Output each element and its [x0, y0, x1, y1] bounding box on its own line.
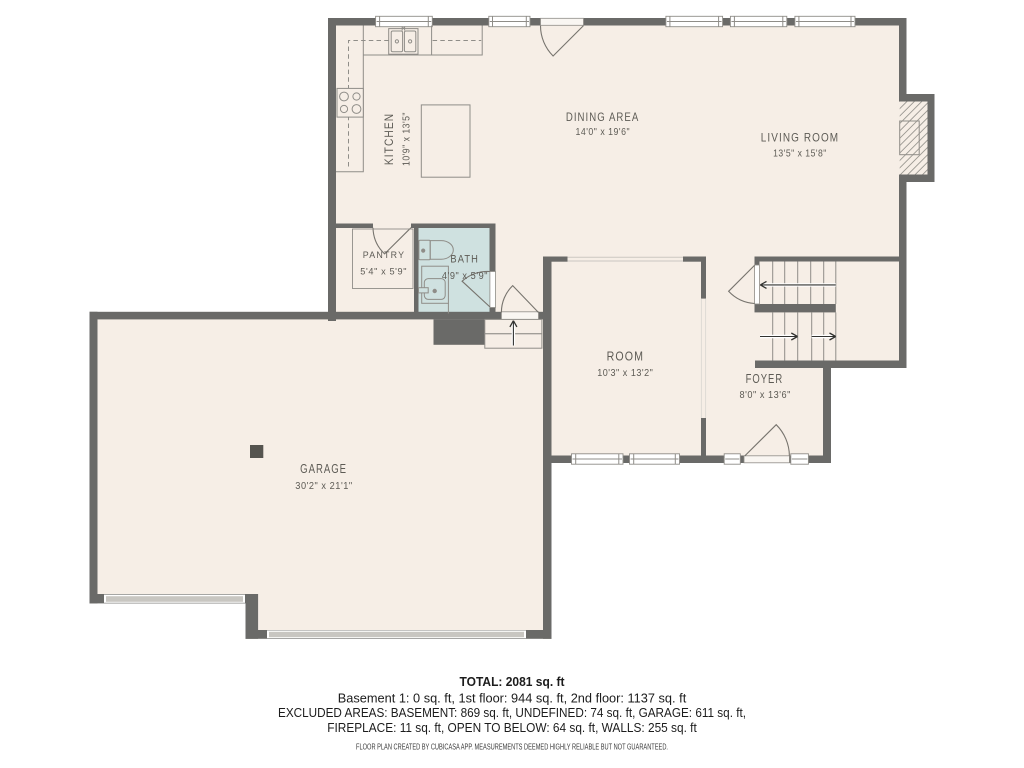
svg-text:30'2" x 21'1": 30'2" x 21'1" [295, 480, 352, 492]
svg-text:GARAGE: GARAGE [300, 462, 347, 476]
svg-text:PANTRY: PANTRY [363, 250, 406, 261]
svg-text:FOYER: FOYER [746, 372, 784, 386]
svg-text:Basement 1: 0 sq. ft, 1st floo: Basement 1: 0 sq. ft, 1st floor: 944 sq.… [338, 690, 687, 705]
svg-text:13'5" x 15'8": 13'5" x 15'8" [773, 148, 827, 160]
svg-text:KITCHEN: KITCHEN [382, 113, 396, 165]
svg-text:10'9" x 13'5": 10'9" x 13'5" [401, 112, 413, 166]
svg-text:14'0" x 19'6": 14'0" x 19'6" [576, 126, 631, 138]
svg-text:FIREPLACE: 11 sq. ft, OPEN TO: FIREPLACE: 11 sq. ft, OPEN TO BELOW: 64 … [327, 720, 697, 735]
svg-text:BATH: BATH [450, 254, 479, 266]
svg-text:LIVING ROOM: LIVING ROOM [761, 131, 839, 145]
svg-text:EXCLUDED AREAS: BASEMENT: 869: EXCLUDED AREAS: BASEMENT: 869 sq. ft, UN… [278, 705, 746, 720]
svg-text:4'9" x 5'9": 4'9" x 5'9" [442, 271, 488, 282]
svg-text:ROOM: ROOM [607, 349, 645, 363]
svg-text:10'3" x 13'2": 10'3" x 13'2" [597, 367, 653, 379]
svg-text:5'4" x 5'9": 5'4" x 5'9" [360, 267, 407, 277]
svg-text:8'0" x 13'6": 8'0" x 13'6" [739, 389, 791, 401]
svg-text:FLOOR PLAN CREATED BY CUBICASA: FLOOR PLAN CREATED BY CUBICASA APP. MEAS… [356, 743, 668, 752]
svg-text:DINING AREA: DINING AREA [566, 110, 640, 124]
svg-text:TOTAL: 2081 sq. ft: TOTAL: 2081 sq. ft [460, 674, 566, 689]
